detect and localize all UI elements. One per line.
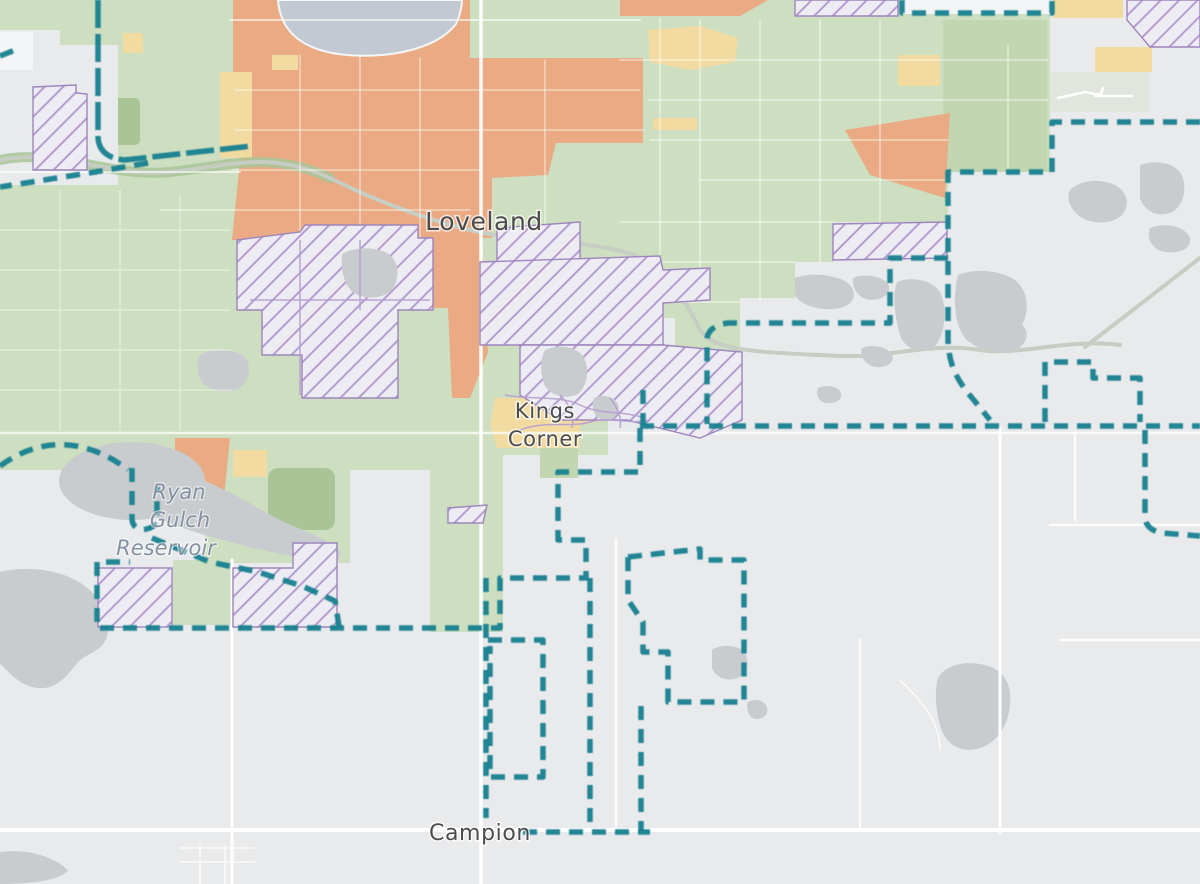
map-canvas[interactable]: Loveland Kings Corner Ryan Gulch Reservo… <box>0 0 1200 884</box>
label-reservoir-line3: Reservoir <box>116 536 217 560</box>
label-reservoir-line1: Ryan <box>152 480 205 504</box>
label-campion: Campion <box>429 821 531 846</box>
label-loveland: Loveland <box>425 207 543 236</box>
label-reservoir-line2: Gulch <box>150 508 210 532</box>
map-viewport[interactable]: Loveland Kings Corner Ryan Gulch Reservo… <box>0 0 1200 884</box>
label-kings-corner-line1: Kings <box>515 399 575 423</box>
label-kings-corner-line2: Corner <box>508 427 582 451</box>
